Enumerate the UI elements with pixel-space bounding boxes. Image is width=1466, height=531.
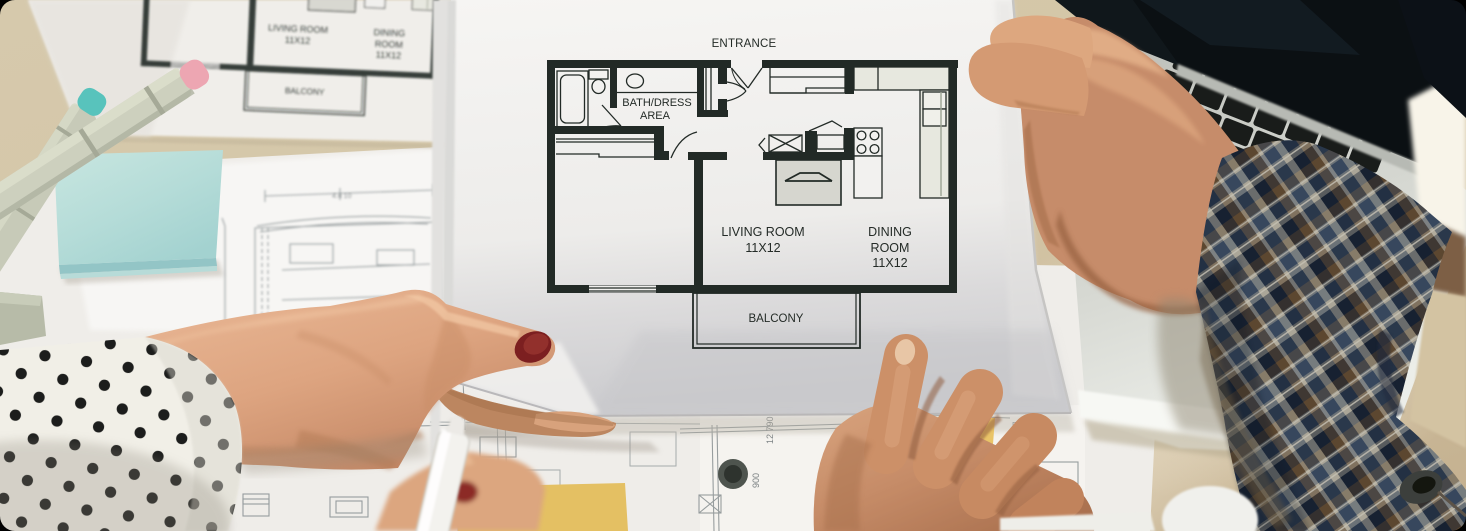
svg-text:ROOM: ROOM <box>871 241 910 255</box>
svg-text:4.4 10: 4.4 10 <box>332 193 352 200</box>
svg-text:900: 900 <box>751 473 761 488</box>
svg-text:LIVING ROOM: LIVING ROOM <box>721 225 804 239</box>
svg-text:BALCONY: BALCONY <box>749 313 804 325</box>
svg-text:DINING: DINING <box>868 225 912 239</box>
svg-text:BATH/DRESS: BATH/DRESS <box>622 97 691 109</box>
svg-text:ENTRANCE: ENTRANCE <box>712 38 777 50</box>
svg-text:11X12: 11X12 <box>872 256 907 270</box>
svg-text:11X12: 11X12 <box>745 241 780 255</box>
svg-text:AREA: AREA <box>640 110 671 122</box>
